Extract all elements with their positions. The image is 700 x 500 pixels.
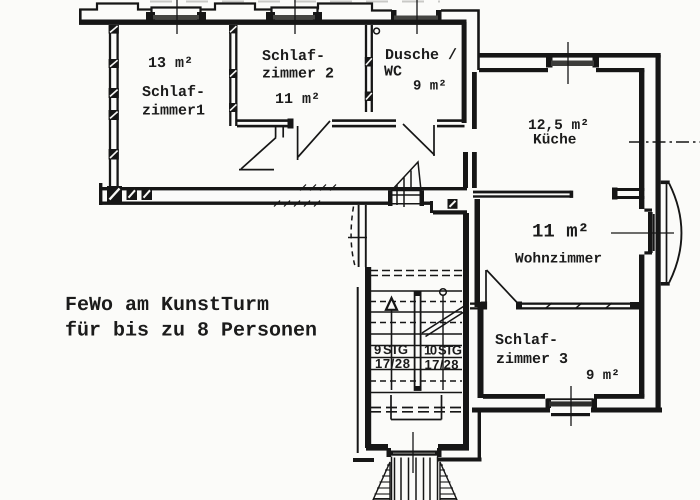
svg-text:10 STG: 10 STG: [424, 343, 462, 358]
svg-text:11 m²: 11 m²: [532, 221, 589, 243]
svg-text:Wohnzimmer: Wohnzimmer: [515, 252, 602, 268]
svg-text:17/28: 17/28: [425, 357, 459, 372]
svg-text:FeWo am KunstTurm: FeWo am KunstTurm: [65, 294, 269, 317]
svg-text:17/28: 17/28: [375, 356, 410, 371]
svg-text:Dusche /: Dusche /: [385, 47, 457, 64]
svg-text:Schlaf-: Schlaf-: [142, 84, 205, 101]
svg-text:Küche: Küche: [533, 133, 577, 149]
svg-text:Schlaf-: Schlaf-: [262, 48, 325, 65]
svg-text:zimmer 2: zimmer 2: [262, 66, 334, 83]
svg-text:für bis zu 8 Personen: für bis zu 8 Personen: [65, 320, 317, 343]
svg-text:13 m²: 13 m²: [148, 55, 193, 72]
svg-text:9 STG: 9 STG: [374, 342, 408, 357]
svg-text:WC: WC: [384, 64, 402, 81]
svg-text:Schlaf-: Schlaf-: [495, 332, 558, 349]
svg-text:9 m²: 9 m²: [413, 79, 447, 95]
svg-text:zimmer1: zimmer1: [142, 103, 205, 120]
svg-text:9 m²: 9 m²: [586, 368, 620, 384]
svg-text:zimmer 3: zimmer 3: [496, 351, 568, 368]
svg-text:11 m²: 11 m²: [275, 91, 320, 108]
